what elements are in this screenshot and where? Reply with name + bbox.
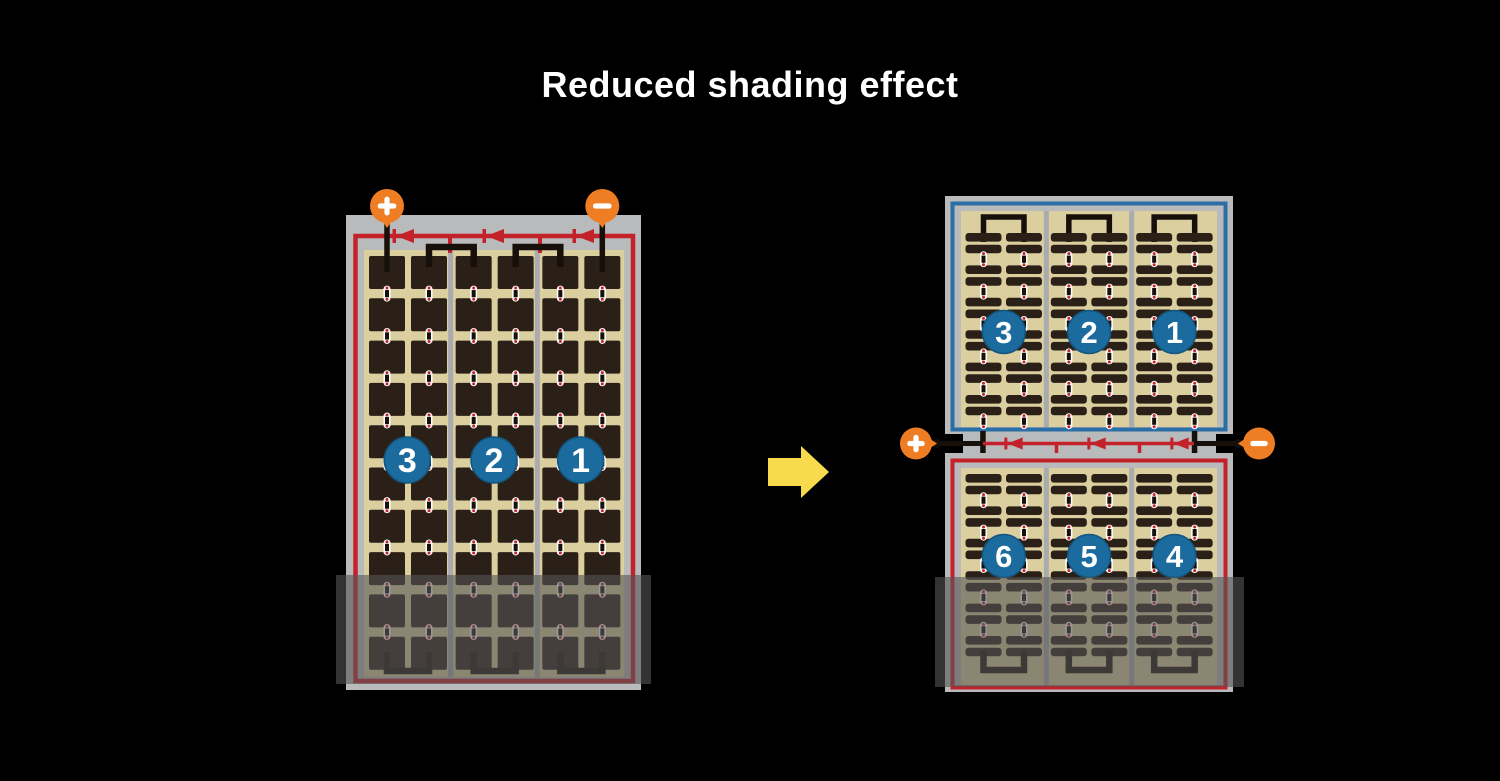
- connector-dot: [428, 371, 431, 374]
- cell-connector-icon: [980, 251, 987, 267]
- cell-connector-icon: [1106, 381, 1113, 397]
- solar-cell: [411, 510, 447, 543]
- solar-cell: [456, 341, 492, 374]
- badge-number: 3: [995, 315, 1012, 350]
- connector-dot: [472, 540, 475, 543]
- connector-dot: [559, 287, 562, 290]
- solar-cell: [542, 298, 578, 331]
- connector-dot: [1023, 537, 1026, 540]
- connector-dot: [1153, 349, 1156, 352]
- badge-number: 1: [1166, 315, 1183, 350]
- string-badge: 2: [471, 437, 517, 483]
- cell-connector-icon: [384, 413, 391, 429]
- cell-connector-icon: [1106, 413, 1113, 429]
- cell-connector-icon: [1191, 413, 1198, 429]
- connector-dot: [1108, 252, 1111, 255]
- string-badge: 1: [558, 437, 604, 483]
- cell-connector-icon: [426, 328, 433, 344]
- connector-dot: [1193, 361, 1196, 364]
- cell-connector-icon: [1191, 251, 1198, 267]
- connector-dot: [1193, 252, 1196, 255]
- shading-overlay: [336, 575, 651, 684]
- connector-dot: [1067, 296, 1070, 299]
- solar-cell: [498, 298, 534, 331]
- after-module-bottom: 654: [935, 453, 1244, 692]
- connector-dot: [1193, 349, 1196, 352]
- connector-dot: [1153, 393, 1156, 396]
- connector-dot: [601, 425, 604, 428]
- cell-connector-icon: [426, 370, 433, 386]
- connector-dot: [514, 329, 517, 332]
- cell-connector-icon: [1065, 284, 1072, 300]
- connector-dot: [982, 569, 985, 572]
- connector-dot: [1023, 296, 1026, 299]
- solar-cell: [584, 298, 620, 331]
- connector-dot: [1153, 526, 1156, 529]
- plus-icon: [913, 435, 918, 453]
- cell-connector-icon: [384, 497, 391, 513]
- half-cell-strip: [1006, 474, 1042, 483]
- cell-connector-icon: [1191, 348, 1198, 364]
- connector-dot: [982, 382, 985, 385]
- connector-dot: [559, 425, 562, 428]
- connector-dot: [1193, 296, 1196, 299]
- connector-dot: [559, 340, 562, 343]
- diode-bar: [483, 229, 487, 243]
- connector-dot: [982, 425, 985, 428]
- connector-dot: [428, 329, 431, 332]
- connector-dot: [514, 413, 517, 416]
- cell-connector-icon: [470, 328, 477, 344]
- connector-dot: [386, 329, 389, 332]
- cell-connector-icon: [1065, 251, 1072, 267]
- connector-dot: [472, 552, 475, 555]
- cell-connector-icon: [1021, 413, 1028, 429]
- solar-cell: [584, 383, 620, 416]
- connector-dot: [386, 540, 389, 543]
- connector-dot: [1153, 504, 1156, 507]
- connector-dot: [601, 329, 604, 332]
- solar-cell: [411, 383, 447, 416]
- connector-dot: [514, 540, 517, 543]
- cell-connector-icon: [1021, 284, 1028, 300]
- connector-dot: [559, 329, 562, 332]
- panel-divider: [1044, 211, 1049, 427]
- diode-bar: [1004, 438, 1007, 450]
- connector-dot: [1023, 382, 1026, 385]
- badge-number: 6: [995, 539, 1012, 574]
- cell-connector-icon: [1021, 381, 1028, 397]
- cell-connector-icon: [1151, 525, 1158, 541]
- string-badge: 6: [982, 535, 1025, 578]
- diode-bar: [573, 229, 577, 243]
- cell-connector-icon: [557, 286, 564, 302]
- connector-dot: [472, 371, 475, 374]
- cell-connector-icon: [384, 370, 391, 386]
- connector-dot: [514, 552, 517, 555]
- solar-cell: [369, 510, 405, 543]
- cell-connector-icon: [557, 328, 564, 344]
- connector-dot: [1067, 504, 1070, 507]
- connector-dot: [428, 382, 431, 385]
- connector-dot: [1108, 382, 1111, 385]
- connector-dot: [1067, 569, 1070, 572]
- connector-dot: [1193, 425, 1196, 428]
- connector-dot: [1193, 569, 1196, 572]
- connector-dot: [386, 340, 389, 343]
- connector-dot: [1108, 285, 1111, 288]
- connector-dot: [1108, 493, 1111, 496]
- connector-dot: [1153, 537, 1156, 540]
- connector-dot: [514, 298, 517, 301]
- cell-connector-icon: [512, 413, 519, 429]
- cell-connector-icon: [1021, 348, 1028, 364]
- connector-dot: [1108, 361, 1111, 364]
- connector-dot: [601, 287, 604, 290]
- cell-connector-icon: [1151, 284, 1158, 300]
- half-cell-strip: [1051, 233, 1087, 242]
- connector-dot: [514, 382, 517, 385]
- connector-dot: [1193, 382, 1196, 385]
- cell-connector-icon: [1106, 525, 1113, 541]
- string-badge: 3: [982, 311, 1025, 354]
- connector-dot: [1067, 252, 1070, 255]
- infographic-canvas: Reduced shading effect 321321654: [0, 0, 1500, 781]
- solar-cell: [456, 383, 492, 416]
- connector-dot: [1067, 285, 1070, 288]
- connector-dot: [559, 552, 562, 555]
- cell-connector-icon: [557, 539, 564, 555]
- connector-dot: [1067, 349, 1070, 352]
- cell-connector-icon: [557, 370, 564, 386]
- connector-dot: [1067, 317, 1070, 320]
- connector-dot: [1193, 504, 1196, 507]
- cell-connector-icon: [1106, 492, 1113, 508]
- connector-dot: [559, 371, 562, 374]
- connector-dot: [1153, 493, 1156, 496]
- connector-dot: [1193, 537, 1196, 540]
- connector-dot: [1108, 349, 1111, 352]
- connector-dot: [982, 504, 985, 507]
- connector-dot: [428, 509, 431, 512]
- connector-dot: [1067, 393, 1070, 396]
- connector-dot: [1153, 296, 1156, 299]
- cell-connector-icon: [980, 492, 987, 508]
- half-cell-strip: [1091, 474, 1127, 483]
- minus-icon: [1250, 441, 1268, 446]
- connector-dot: [386, 498, 389, 501]
- cell-connector-icon: [1106, 348, 1113, 364]
- connector-dot: [1067, 414, 1070, 417]
- cell-connector-icon: [384, 286, 391, 302]
- half-cell-strip: [1091, 233, 1127, 242]
- connector-dot: [1108, 414, 1111, 417]
- plus-icon: [384, 197, 389, 216]
- connector-dot: [1108, 526, 1111, 529]
- connector-dot: [472, 340, 475, 343]
- connector-dot: [982, 263, 985, 266]
- solar-cell: [411, 341, 447, 374]
- connector-dot: [1023, 569, 1026, 572]
- cell-connector-icon: [512, 286, 519, 302]
- solar-cell: [542, 341, 578, 374]
- badge-number: 4: [1166, 539, 1184, 574]
- cell-connector-icon: [470, 413, 477, 429]
- connector-dot: [1108, 296, 1111, 299]
- connector-dot: [1023, 504, 1026, 507]
- cell-connector-icon: [1106, 251, 1113, 267]
- connector-dot: [1067, 382, 1070, 385]
- connector-dot: [428, 298, 431, 301]
- solar-cell: [456, 510, 492, 543]
- panel-divider: [1129, 211, 1134, 427]
- connector-dot: [1108, 393, 1111, 396]
- connector-dot: [982, 317, 985, 320]
- connector-dot: [1067, 361, 1070, 364]
- connector-dot: [472, 382, 475, 385]
- half-cell-strip: [1051, 474, 1087, 483]
- solar-cell: [369, 298, 405, 331]
- cell-connector-icon: [599, 413, 606, 429]
- cell-connector-icon: [426, 286, 433, 302]
- cell-connector-icon: [980, 381, 987, 397]
- solar-cell: [498, 510, 534, 543]
- connector-dot: [559, 382, 562, 385]
- cell-connector-icon: [470, 370, 477, 386]
- cell-connector-icon: [1065, 413, 1072, 429]
- connector-dot: [601, 371, 604, 374]
- cell-connector-icon: [512, 497, 519, 513]
- connector-dot: [1023, 414, 1026, 417]
- cell-connector-icon: [512, 370, 519, 386]
- connector-dot: [1067, 263, 1070, 266]
- connector-dot: [1153, 569, 1156, 572]
- half-cell-strip: [1136, 474, 1172, 483]
- connector-dot: [514, 425, 517, 428]
- connector-dot: [1193, 263, 1196, 266]
- badge-number: 2: [485, 442, 504, 480]
- connector-dot: [601, 509, 604, 512]
- badge-number: 5: [1081, 539, 1098, 574]
- connector-dot: [386, 298, 389, 301]
- connector-dot: [1023, 285, 1026, 288]
- cell-connector-icon: [1151, 492, 1158, 508]
- connector-dot: [1023, 393, 1026, 396]
- connector-dot: [982, 414, 985, 417]
- half-cell-strip: [1136, 233, 1172, 242]
- connector-dot: [472, 413, 475, 416]
- badge-number: 3: [398, 442, 417, 480]
- cell-connector-icon: [1151, 381, 1158, 397]
- string-badge: 4: [1153, 535, 1196, 578]
- cell-connector-icon: [470, 539, 477, 555]
- solar-cell: [498, 383, 534, 416]
- connector-dot: [514, 371, 517, 374]
- cell-connector-icon: [1151, 413, 1158, 429]
- connector-dot: [1023, 349, 1026, 352]
- diode-bar: [393, 229, 397, 243]
- connector-dot: [472, 287, 475, 290]
- connector-dot: [982, 285, 985, 288]
- connector-dot: [601, 340, 604, 343]
- connector-dot: [601, 382, 604, 385]
- cell-connector-icon: [512, 539, 519, 555]
- connector-dot: [1153, 361, 1156, 364]
- cell-connector-icon: [1021, 525, 1028, 541]
- cell-connector-icon: [599, 286, 606, 302]
- cell-connector-icon: [426, 497, 433, 513]
- connector-dot: [1023, 252, 1026, 255]
- cell-connector-icon: [1191, 284, 1198, 300]
- connector-dot: [386, 552, 389, 555]
- connector-dot: [386, 371, 389, 374]
- cell-connector-icon: [1191, 381, 1198, 397]
- connector-dot: [601, 298, 604, 301]
- cell-connector-icon: [1191, 525, 1198, 541]
- cell-connector-icon: [980, 284, 987, 300]
- solar-cell: [542, 510, 578, 543]
- cell-connector-icon: [1065, 492, 1072, 508]
- connector-dot: [472, 509, 475, 512]
- diode-bar: [1170, 438, 1173, 450]
- connector-dot: [1108, 263, 1111, 266]
- cell-connector-icon: [512, 328, 519, 344]
- solar-cell: [369, 383, 405, 416]
- connector-dot: [1193, 414, 1196, 417]
- badge-number: 2: [1081, 315, 1098, 350]
- connector-dot: [1153, 285, 1156, 288]
- negative-terminal: [1238, 428, 1275, 460]
- cell-connector-icon: [599, 497, 606, 513]
- solar-cell: [411, 298, 447, 331]
- connector-dot: [1153, 425, 1156, 428]
- badge-number: 1: [571, 442, 590, 480]
- positive-terminal: [900, 428, 937, 460]
- half-cell-strip: [966, 233, 1002, 242]
- connector-dot: [428, 287, 431, 290]
- cell-connector-icon: [557, 497, 564, 513]
- transition-arrow-icon: [768, 446, 829, 498]
- connector-dot: [982, 361, 985, 364]
- connector-dot: [1023, 361, 1026, 364]
- cell-connector-icon: [1106, 284, 1113, 300]
- cell-connector-icon: [1151, 251, 1158, 267]
- connector-dot: [1108, 569, 1111, 572]
- connector-dot: [1023, 263, 1026, 266]
- connector-dot: [428, 552, 431, 555]
- before-module: 321: [336, 189, 651, 690]
- connector-dot: [1193, 317, 1196, 320]
- cell-connector-icon: [384, 539, 391, 555]
- connector-dot: [982, 349, 985, 352]
- connector-dot: [559, 540, 562, 543]
- connector-dot: [472, 425, 475, 428]
- diode-bar: [1087, 438, 1090, 450]
- connector-dot: [982, 393, 985, 396]
- half-cell-strip: [966, 474, 1002, 483]
- cell-connector-icon: [1065, 348, 1072, 364]
- connector-dot: [1193, 285, 1196, 288]
- solar-cell: [456, 298, 492, 331]
- connector-dot: [559, 413, 562, 416]
- solar-cell: [584, 341, 620, 374]
- connector-dot: [1153, 414, 1156, 417]
- cell-connector-icon: [980, 413, 987, 429]
- solar-cell: [584, 510, 620, 543]
- connector-dot: [514, 340, 517, 343]
- cell-connector-icon: [1065, 525, 1072, 541]
- solar-cell: [369, 341, 405, 374]
- solar-cell: [498, 341, 534, 374]
- connector-dot: [559, 298, 562, 301]
- connector-dot: [601, 552, 604, 555]
- connector-dot: [428, 540, 431, 543]
- cell-connector-icon: [599, 328, 606, 344]
- connector-dot: [428, 425, 431, 428]
- cell-connector-icon: [1065, 381, 1072, 397]
- string-badge: 3: [384, 437, 430, 483]
- connector-dot: [601, 498, 604, 501]
- connector-dot: [1108, 425, 1111, 428]
- cell-connector-icon: [384, 328, 391, 344]
- connector-dot: [1153, 263, 1156, 266]
- connector-dot: [1067, 425, 1070, 428]
- connector-dot: [601, 413, 604, 416]
- connector-dot: [982, 537, 985, 540]
- connector-dot: [428, 340, 431, 343]
- connector-dot: [514, 498, 517, 501]
- connector-dot: [386, 287, 389, 290]
- half-cell-strip: [1177, 233, 1213, 242]
- cell-connector-icon: [557, 413, 564, 429]
- connector-dot: [1193, 493, 1196, 496]
- connector-dot: [1153, 252, 1156, 255]
- connector-dot: [559, 509, 562, 512]
- connector-dot: [386, 509, 389, 512]
- connector-dot: [1108, 317, 1111, 320]
- connector-dot: [1153, 382, 1156, 385]
- connector-dot: [514, 509, 517, 512]
- connector-dot: [601, 540, 604, 543]
- cell-connector-icon: [1151, 348, 1158, 364]
- connector-dot: [1067, 537, 1070, 540]
- connector-dot: [428, 413, 431, 416]
- solar-cell: [542, 383, 578, 416]
- connector-dot: [1108, 537, 1111, 540]
- shading-overlay: [935, 577, 1244, 687]
- connector-dot: [386, 413, 389, 416]
- after-module-top: 321: [945, 196, 1233, 434]
- connector-dot: [386, 382, 389, 385]
- cell-connector-icon: [599, 539, 606, 555]
- connector-dot: [1023, 317, 1026, 320]
- connector-dot: [428, 498, 431, 501]
- cell-connector-icon: [980, 348, 987, 364]
- connector-dot: [982, 296, 985, 299]
- connector-dot: [386, 425, 389, 428]
- cell-connector-icon: [426, 539, 433, 555]
- connector-dot: [982, 252, 985, 255]
- string-badge: 2: [1068, 311, 1111, 354]
- connector-dot: [472, 298, 475, 301]
- connector-dot: [559, 498, 562, 501]
- half-cell-strip: [1177, 474, 1213, 483]
- connector-dot: [982, 493, 985, 496]
- cell-connector-icon: [470, 286, 477, 302]
- string-badge: 5: [1068, 535, 1111, 578]
- connector-dot: [1067, 526, 1070, 529]
- connector-dot: [514, 287, 517, 290]
